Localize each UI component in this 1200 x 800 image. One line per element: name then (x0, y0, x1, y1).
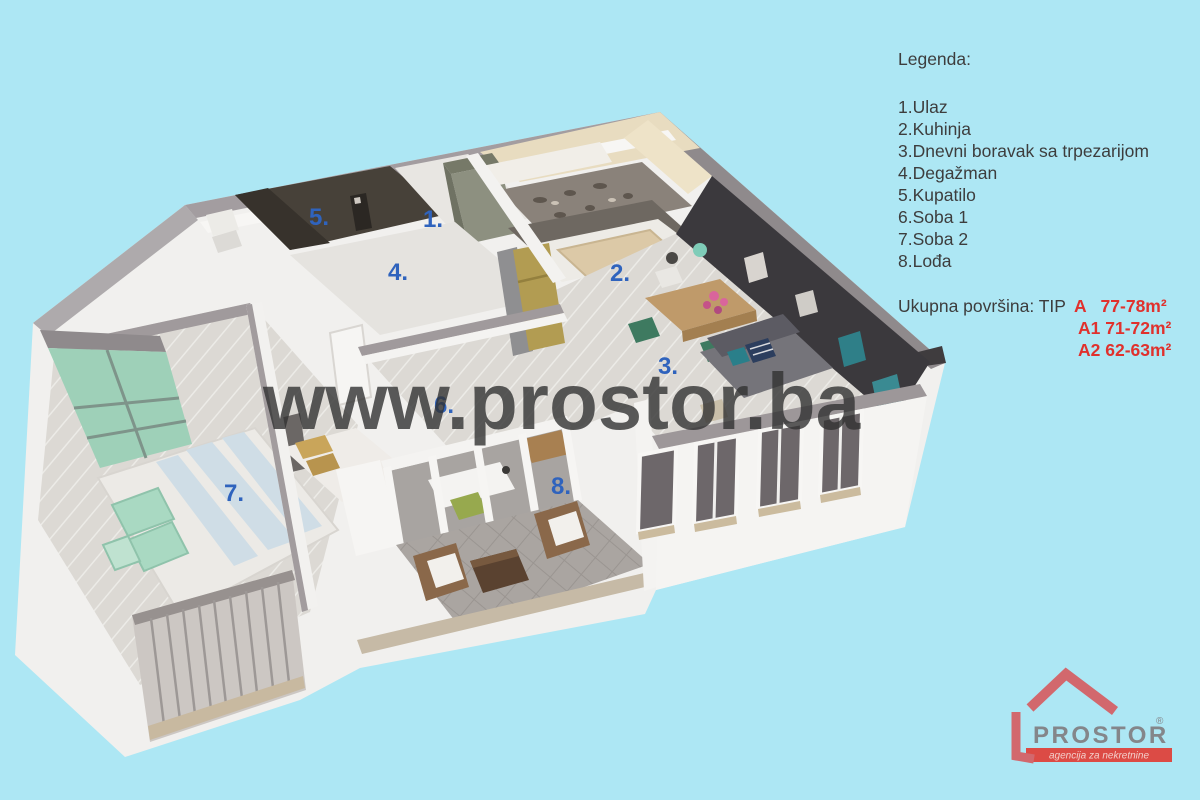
area-tip-a2: A2 62-63m² (1078, 339, 1171, 361)
pendant-lamp (693, 243, 707, 257)
logo-registered-mark: ® (1156, 716, 1164, 727)
legend-item-soba2: 7.Soba 2 (898, 228, 1149, 250)
floor-lamp (666, 252, 678, 264)
legend: Legenda: 1.Ulaz 2.Kuhinja 3.Dnevni borav… (898, 48, 1149, 272)
legend-item-kuhinja: 2.Kuhinja (898, 118, 1149, 140)
total-area-block: Ukupna površina: TIPA 77-78m² A1 71-72m²… (898, 295, 1171, 361)
desk-lamp (502, 466, 510, 474)
legend-item-degazman: 4.Degažman (898, 162, 1149, 184)
legend-item-kupatilo: 5.Kupatilo (898, 184, 1149, 206)
total-area-row: Ukupna površina: TIPA 77-78m² (898, 295, 1171, 317)
logo-house-roof-icon (1030, 674, 1115, 711)
watermark-text: www.prostor.ba (263, 356, 860, 448)
area-tip-a1: A1 71-72m² (1078, 317, 1171, 339)
legend-item-dnevni-boravak: 3.Dnevni boravak sa trpezarijom (898, 140, 1149, 162)
room-number-7: 7. (224, 480, 244, 507)
room-number-5: 5. (309, 204, 329, 231)
area-tip-a: A 77-78m² (1074, 296, 1167, 316)
legend-item-soba1: 6.Soba 1 (898, 206, 1149, 228)
legend-item-lodja: 8.Lođa (898, 250, 1149, 272)
room-number-1: 1. (423, 206, 443, 233)
room-number-2: 2. (610, 260, 630, 287)
room-number-8: 8. (551, 473, 571, 500)
legend-item-ulaz: 1.Ulaz (898, 96, 1149, 118)
legend-title: Legenda: (898, 48, 1149, 70)
real-estate-floorplan-image: 1. 2. 3. 4. 5. 6. 7. 8. www.prostor.ba L… (0, 0, 1200, 800)
total-area-label: Ukupna površina: TIP (898, 296, 1066, 316)
logo-name: PROSTOR (1033, 722, 1169, 749)
agency-logo-graphic: agencija za nekretnine PROSTOR ® (1003, 662, 1188, 774)
room-number-4: 4. (388, 259, 408, 286)
logo-tagline: agencija za nekretnine (1049, 751, 1150, 762)
agency-logo: agencija za nekretnine PROSTOR ® (1003, 662, 1188, 774)
